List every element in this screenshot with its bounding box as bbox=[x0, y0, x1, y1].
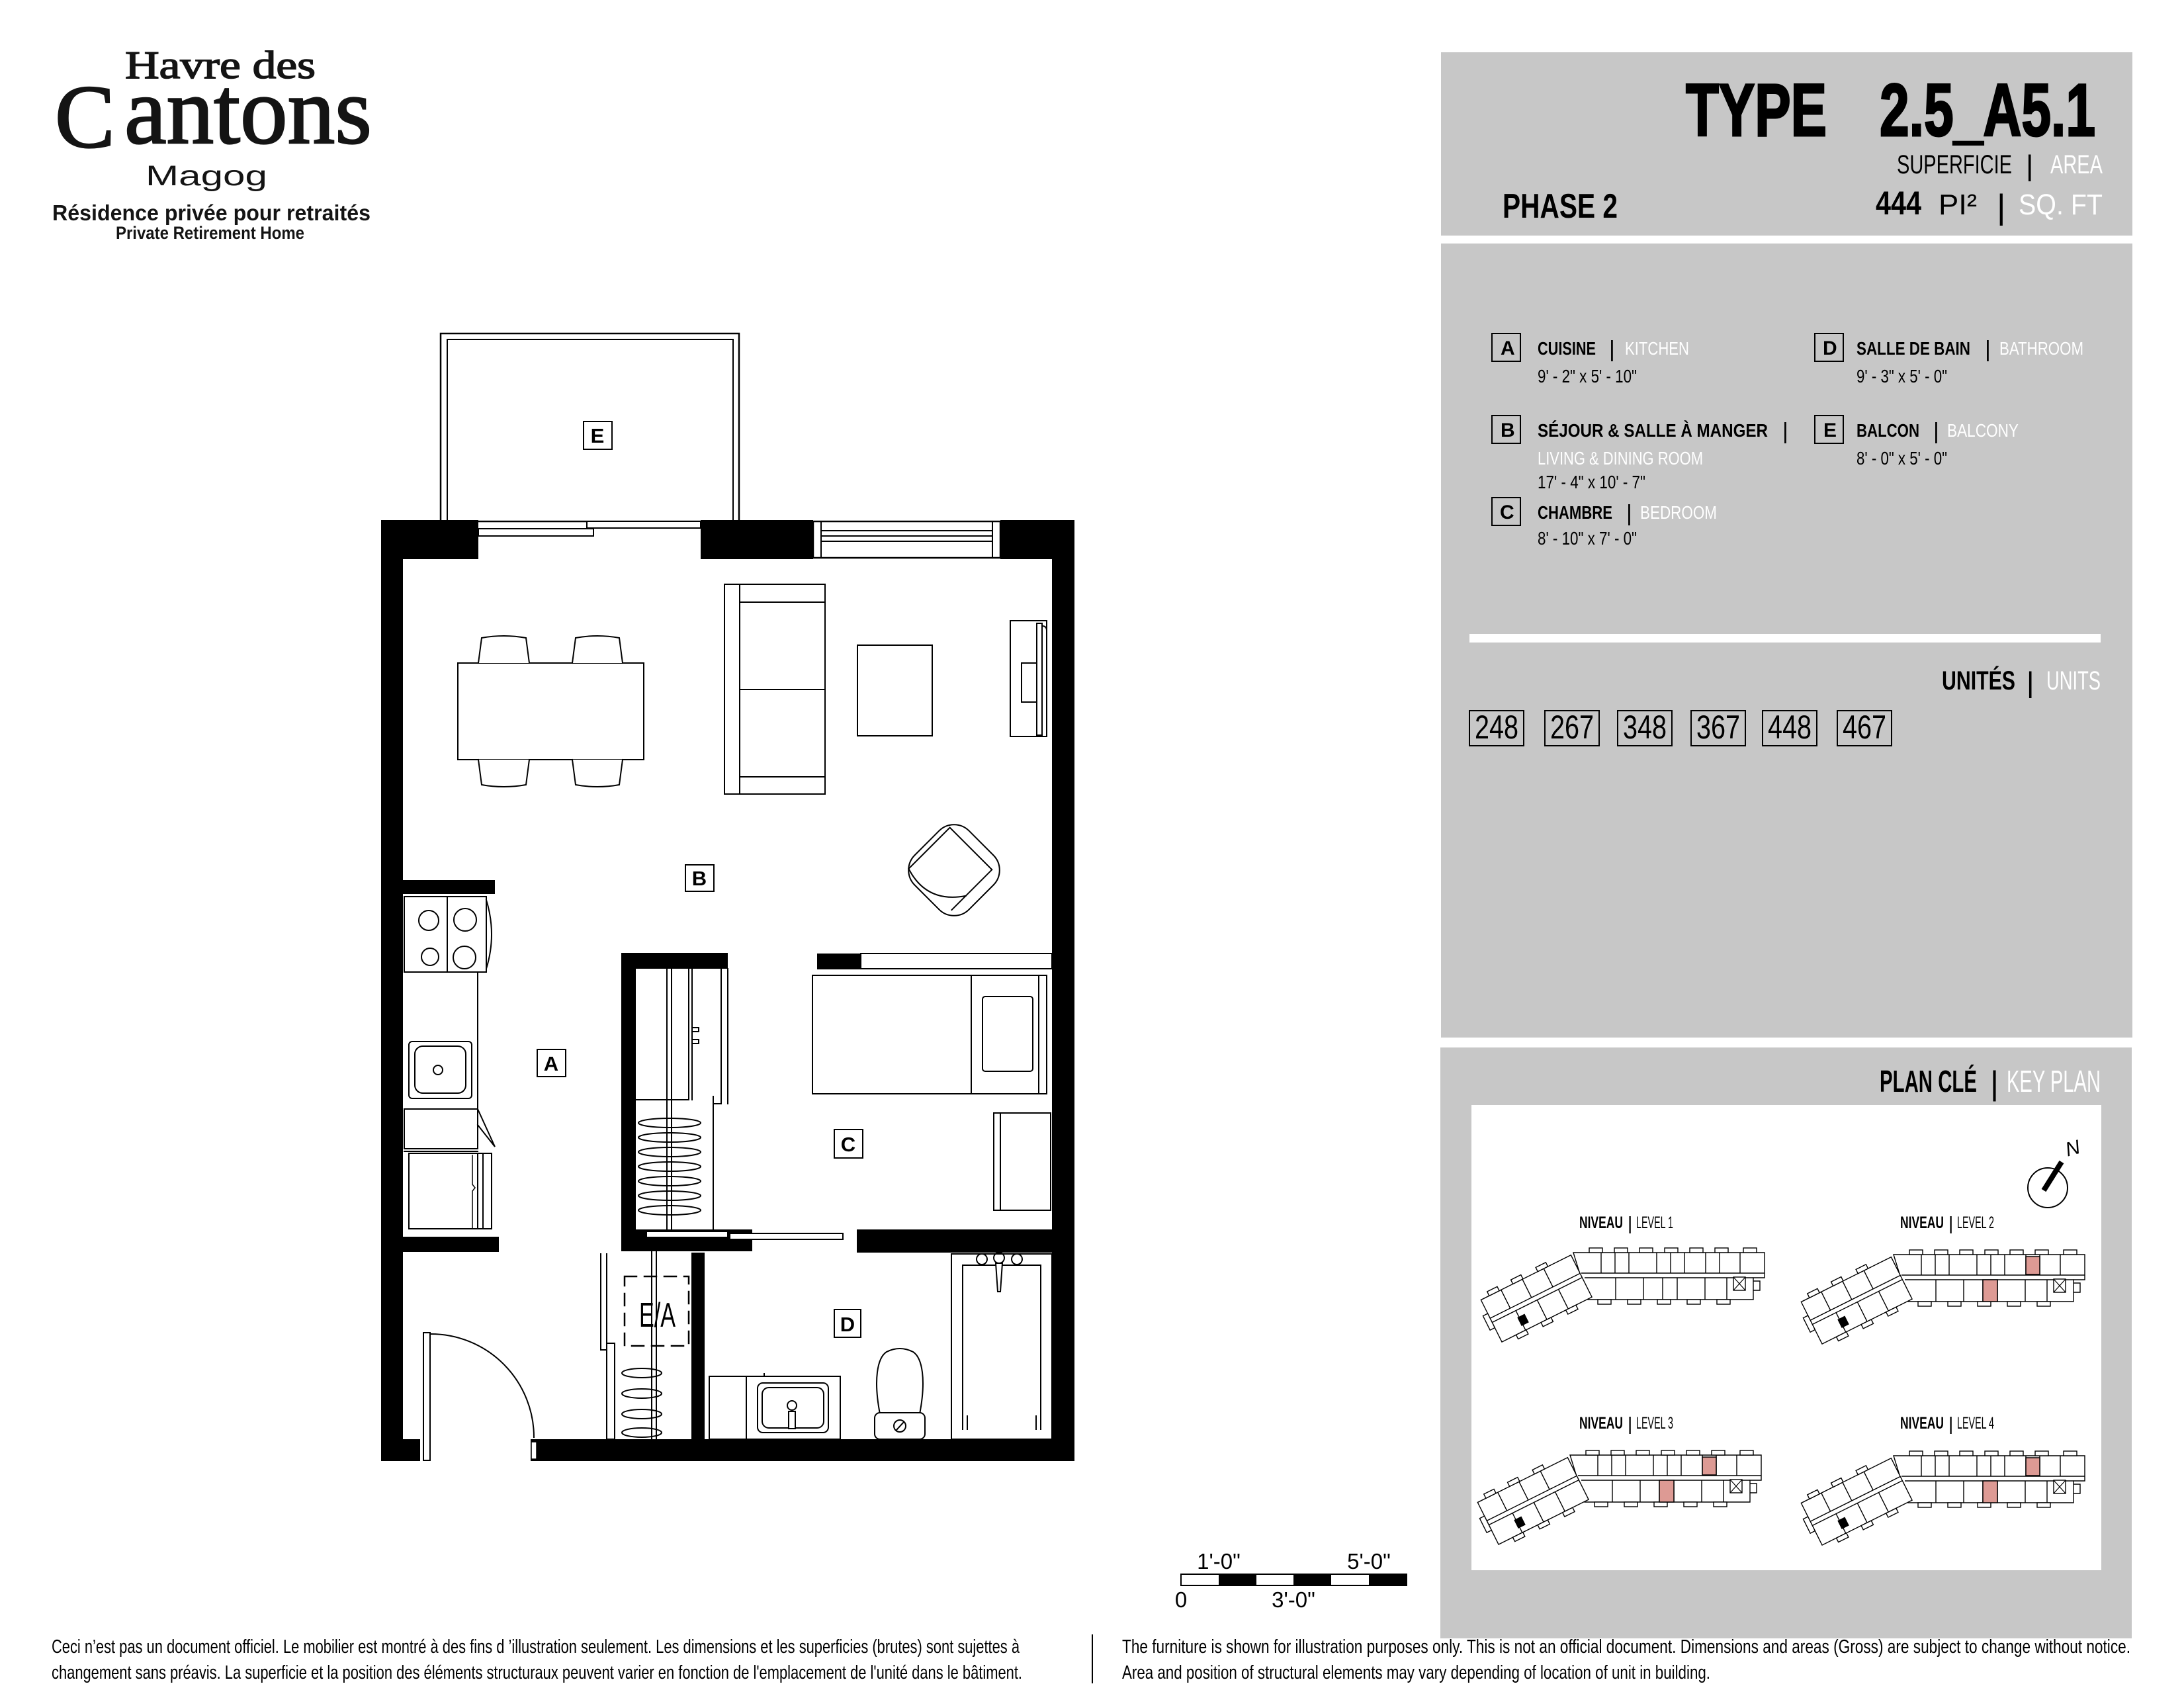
svg-text:3'-0": 3'-0" bbox=[1272, 1587, 1315, 1612]
svg-text:A: A bbox=[1501, 337, 1515, 359]
svg-text:NIVEAU: NIVEAU bbox=[1900, 1414, 1944, 1433]
svg-text:SALLE DE BAIN: SALLE DE BAIN bbox=[1856, 338, 1970, 359]
svg-text:|: | bbox=[2026, 150, 2033, 182]
svg-text:Area and position of structura: Area and position of structural elements… bbox=[1122, 1662, 1710, 1683]
svg-text:NIVEAU: NIVEAU bbox=[1579, 1214, 1623, 1232]
svg-text:LEVEL 4: LEVEL 4 bbox=[1957, 1414, 1994, 1433]
svg-text:C: C bbox=[841, 1133, 855, 1156]
svg-text:BEDROOM: BEDROOM bbox=[1640, 502, 1717, 523]
svg-text:PHASE 2: PHASE 2 bbox=[1503, 187, 1618, 226]
svg-text:PI²: PI² bbox=[1939, 189, 1977, 221]
svg-text:UNITÉS: UNITÉS bbox=[1942, 666, 2015, 695]
svg-text:|: | bbox=[1628, 1213, 1632, 1233]
svg-text:D: D bbox=[840, 1313, 855, 1336]
svg-text:Magog: Magog bbox=[146, 160, 267, 192]
svg-text:KEY PLAN: KEY PLAN bbox=[2007, 1064, 2101, 1098]
svg-text:9' - 3" x 5' - 0": 9' - 3" x 5' - 0" bbox=[1856, 366, 1947, 386]
svg-text:|: | bbox=[1933, 419, 1939, 444]
svg-text:17' - 4" x 10' - 7": 17' - 4" x 10' - 7" bbox=[1538, 472, 1645, 492]
svg-text:|: | bbox=[1628, 1413, 1632, 1434]
svg-text:Résidence privée pour retraité: Résidence privée pour retraités bbox=[52, 200, 371, 225]
svg-text:|: | bbox=[1609, 337, 1615, 362]
svg-text:LEVEL 3: LEVEL 3 bbox=[1636, 1414, 1673, 1433]
svg-text:SUPERFICIE: SUPERFICIE bbox=[1897, 150, 2012, 179]
svg-text:NIVEAU: NIVEAU bbox=[1900, 1214, 1944, 1232]
svg-text:448: 448 bbox=[1768, 709, 1812, 746]
svg-text:2.5_A5.1: 2.5_A5.1 bbox=[1880, 69, 2095, 152]
svg-text:8' - 10" x 7' - 0": 8' - 10" x 7' - 0" bbox=[1538, 528, 1637, 549]
svg-text:A: A bbox=[544, 1052, 558, 1075]
svg-text:LEVEL 1: LEVEL 1 bbox=[1636, 1214, 1673, 1232]
svg-text:changement sans préavis. La su: changement sans préavis. La superficie e… bbox=[52, 1662, 1022, 1683]
svg-text:UNITS: UNITS bbox=[2046, 666, 2101, 695]
svg-text:SQ. FT: SQ. FT bbox=[2019, 189, 2103, 221]
svg-text:CHAMBRE: CHAMBRE bbox=[1538, 502, 1612, 523]
svg-text:C: C bbox=[55, 67, 115, 167]
svg-text:|: | bbox=[2027, 666, 2034, 699]
svg-text:8' - 0" x 5' - 0": 8' - 0" x 5' - 0" bbox=[1856, 448, 1947, 468]
svg-text:CUISINE: CUISINE bbox=[1538, 338, 1596, 359]
svg-text:Private Retirement Home: Private Retirement Home bbox=[116, 223, 304, 243]
svg-text:PLAN CLÉ: PLAN CLÉ bbox=[1880, 1064, 1977, 1098]
svg-text:Ceci n’est pas un document off: Ceci n’est pas un document officiel. Le … bbox=[52, 1636, 1020, 1658]
svg-text:|: | bbox=[1990, 1065, 1999, 1102]
svg-text:|: | bbox=[1997, 188, 2006, 226]
svg-text:348: 348 bbox=[1623, 709, 1667, 746]
svg-text:The furniture is shown for ill: The furniture is shown for illustration … bbox=[1122, 1636, 2130, 1658]
svg-text:9' - 2" x 5' - 10": 9' - 2" x 5' - 10" bbox=[1538, 366, 1637, 386]
svg-text:SÉJOUR & SALLE À MANGER: SÉJOUR & SALLE À MANGER bbox=[1538, 420, 1768, 441]
svg-text:367: 367 bbox=[1696, 709, 1740, 746]
svg-text:LEVEL 2: LEVEL 2 bbox=[1957, 1214, 1994, 1232]
svg-text:0: 0 bbox=[1175, 1587, 1187, 1612]
svg-text:E/A: E/A bbox=[639, 1296, 676, 1335]
svg-text:5'-0": 5'-0" bbox=[1347, 1549, 1391, 1574]
svg-text:444: 444 bbox=[1876, 185, 1921, 222]
svg-text:|: | bbox=[1985, 337, 1991, 362]
svg-text:BATHROOM: BATHROOM bbox=[1999, 338, 2083, 359]
svg-text:LIVING & DINING ROOM: LIVING & DINING ROOM bbox=[1538, 448, 1703, 468]
svg-text:B: B bbox=[692, 867, 707, 890]
svg-text:1'-0": 1'-0" bbox=[1197, 1549, 1241, 1574]
svg-text:NIVEAU: NIVEAU bbox=[1579, 1414, 1623, 1433]
svg-text:B: B bbox=[1501, 420, 1515, 441]
svg-text:KITCHEN: KITCHEN bbox=[1625, 338, 1689, 359]
svg-text:|: | bbox=[1948, 1213, 1953, 1233]
svg-text:E: E bbox=[591, 424, 605, 447]
svg-text:467: 467 bbox=[1843, 709, 1886, 746]
svg-text:BALCON: BALCON bbox=[1856, 420, 1919, 441]
svg-text:E: E bbox=[1823, 420, 1837, 441]
svg-text:|: | bbox=[1948, 1413, 1953, 1434]
svg-text:D: D bbox=[1823, 337, 1837, 359]
svg-text:248: 248 bbox=[1475, 709, 1518, 746]
svg-text:BALCONY: BALCONY bbox=[1947, 420, 2019, 441]
svg-text:TYPE: TYPE bbox=[1686, 69, 1827, 152]
svg-text:|: | bbox=[1626, 501, 1632, 526]
svg-text:267: 267 bbox=[1550, 709, 1594, 746]
svg-text:C: C bbox=[1500, 502, 1514, 523]
svg-text:antons: antons bbox=[124, 58, 372, 164]
svg-text:|: | bbox=[1782, 419, 1788, 444]
svg-text:AREA: AREA bbox=[2050, 150, 2103, 179]
